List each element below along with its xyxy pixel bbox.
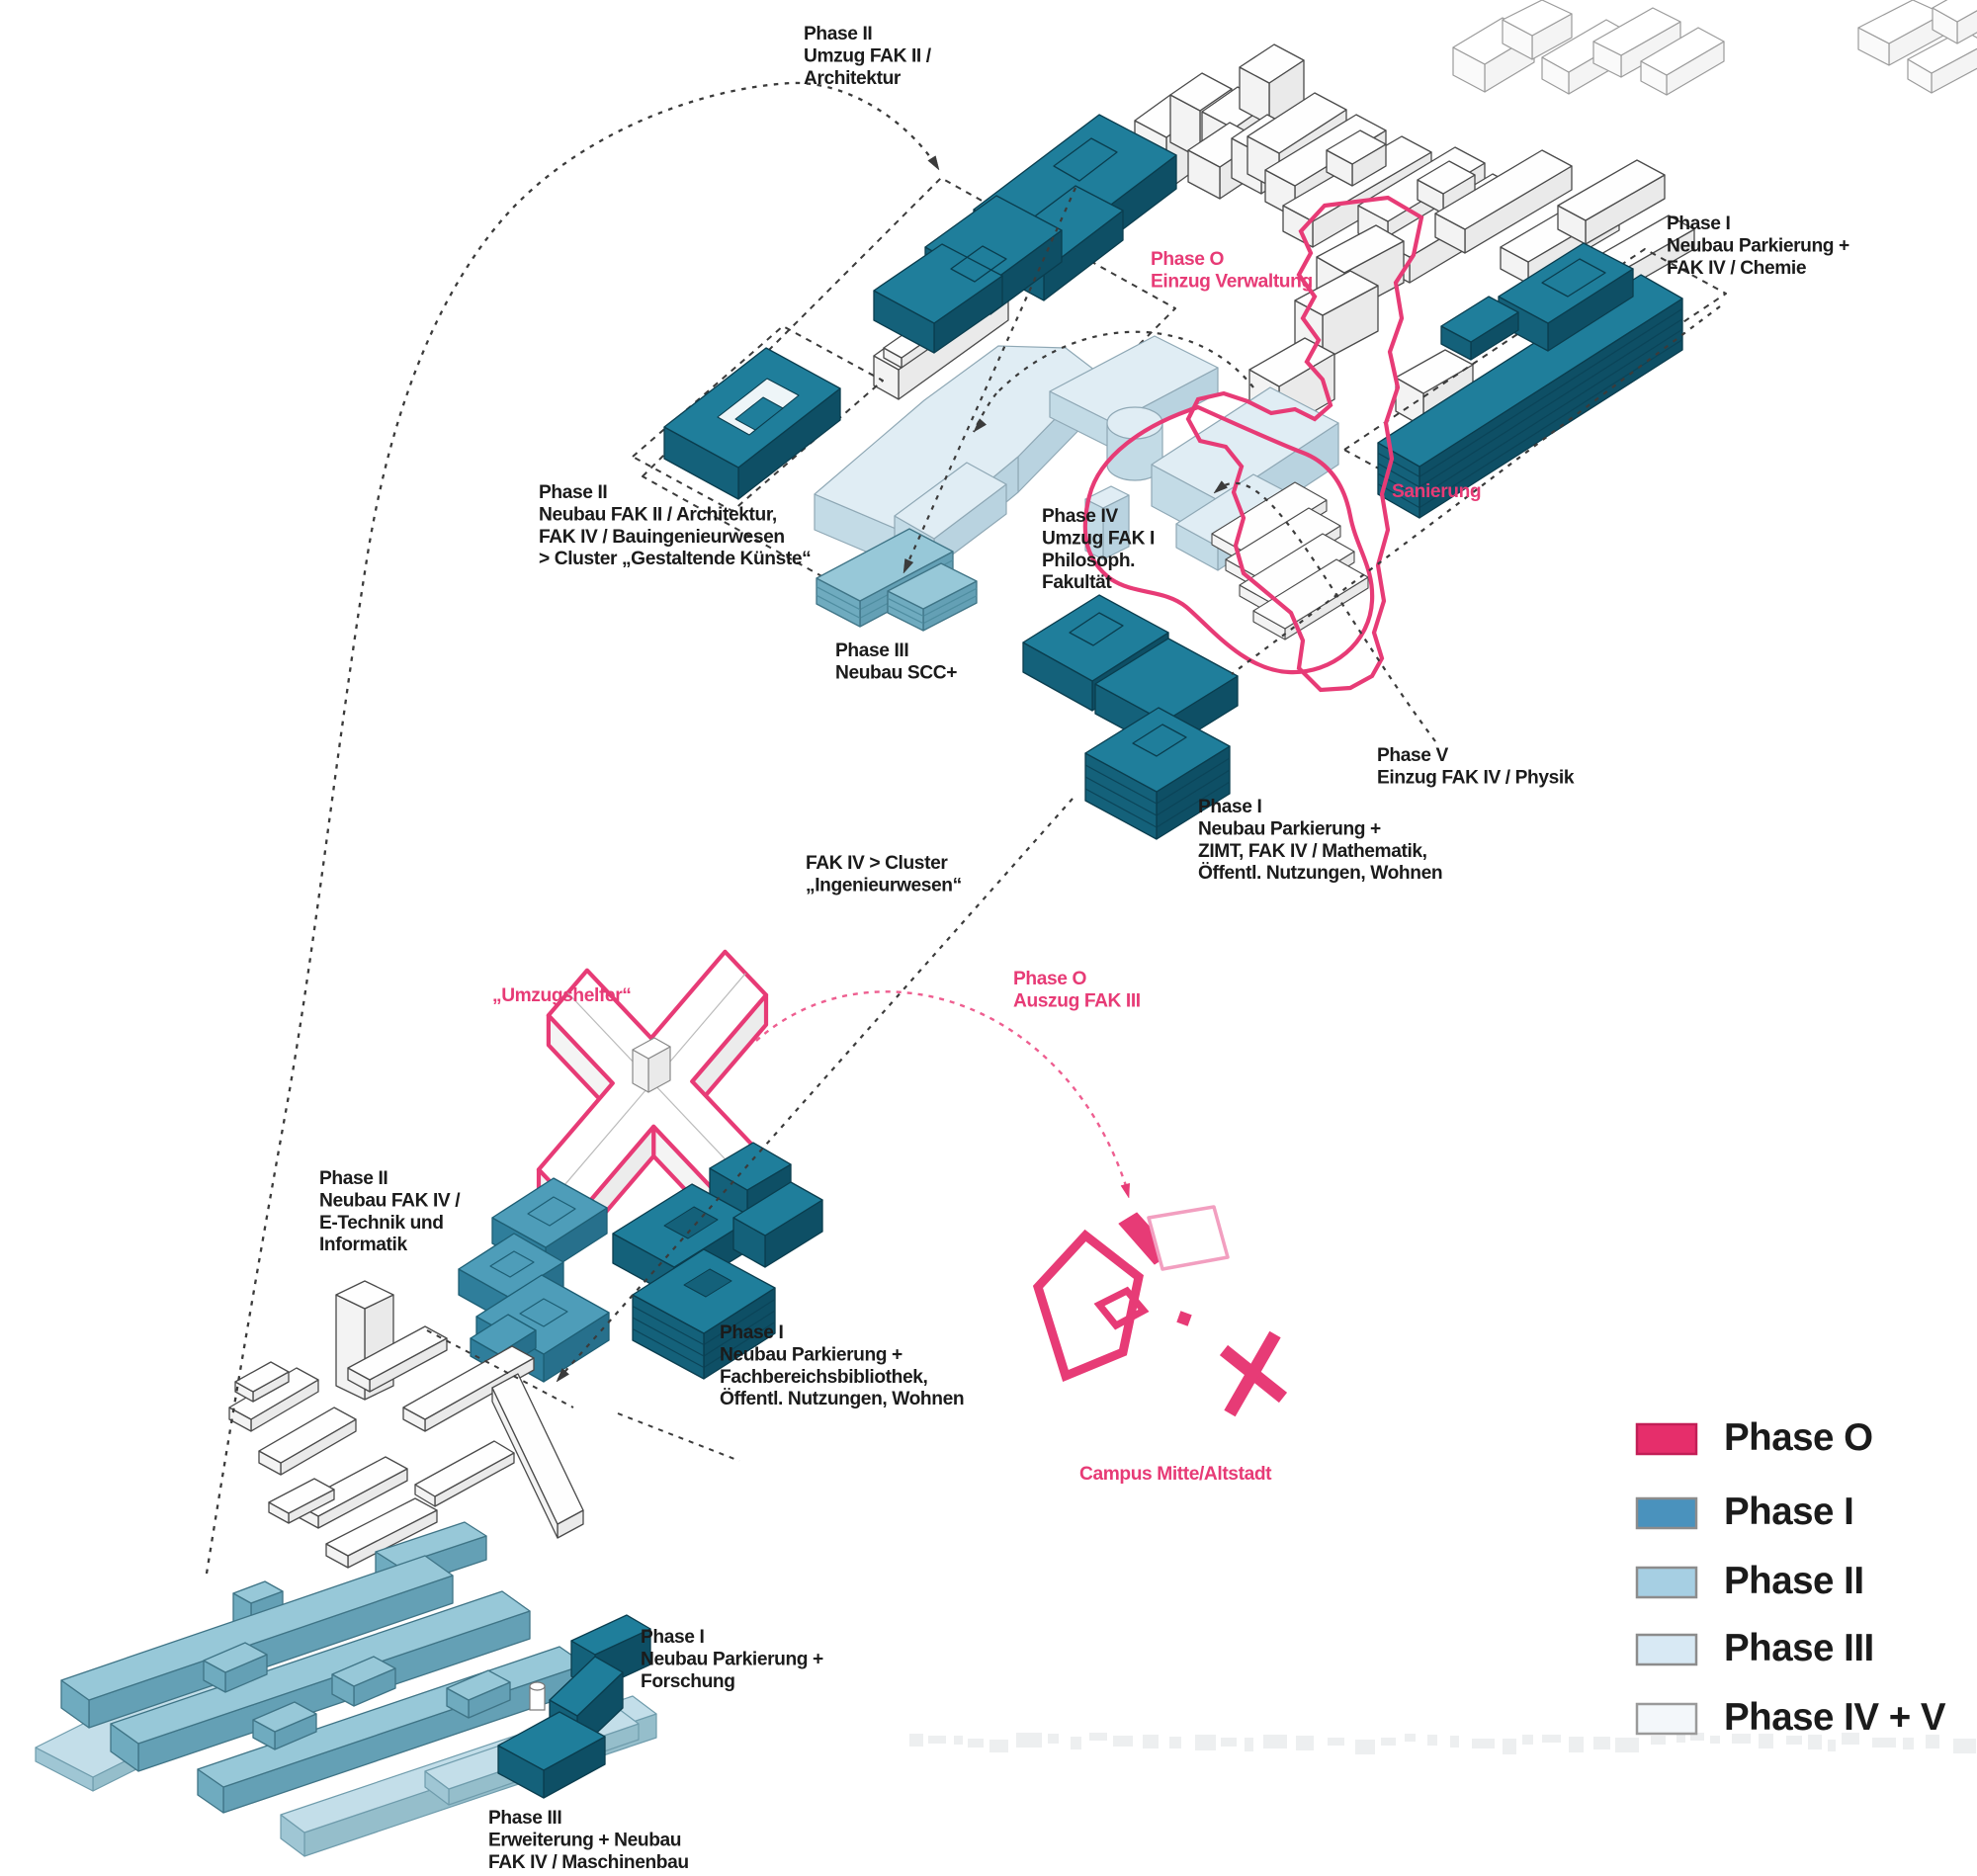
svg-text:Phase INeubau Parkierung +Fach: Phase INeubau Parkierung +Fachbereichsbi… [720, 1322, 964, 1409]
svg-text:Phase IIINeubau SCC+: Phase IIINeubau SCC+ [835, 640, 957, 683]
svg-text:Campus Mitte/Altstadt: Campus Mitte/Altstadt [1079, 1464, 1272, 1485]
svg-text:Phase IIUmzug FAK II /Architek: Phase IIUmzug FAK II /Architektur [804, 24, 932, 89]
svg-text:FAK IV > Cluster„Ingenieurwese: FAK IV > Cluster„Ingenieurwesen“ [806, 853, 962, 895]
svg-text:Phase IV + V: Phase IV + V [1724, 1696, 1946, 1739]
svg-text:Phase INeubau Parkierung +FAK: Phase INeubau Parkierung +FAK IV / Chemi… [1667, 213, 1849, 279]
svg-text:Phase IIIErweiterung + NeubauF: Phase IIIErweiterung + NeubauFAK IV / Ma… [488, 1808, 689, 1873]
svg-text:Phase OEinzug Verwaltung: Phase OEinzug Verwaltung [1151, 249, 1313, 292]
svg-text:Phase OAuszug FAK III: Phase OAuszug FAK III [1013, 969, 1141, 1011]
svg-text:Phase IINeubau FAK IV /E-Techn: Phase IINeubau FAK IV /E-Technik undInfo… [319, 1168, 461, 1255]
svg-text:Phase INeubau Parkierung +ZIMT: Phase INeubau Parkierung +ZIMT, FAK IV /… [1198, 797, 1442, 884]
svg-text:Phase O: Phase O [1724, 1416, 1873, 1459]
svg-text:Sanierung: Sanierung [1392, 481, 1481, 502]
svg-text:Phase IVUmzug FAK IPhilosoph.F: Phase IVUmzug FAK IPhilosoph.Fakultät [1042, 506, 1155, 593]
svg-text:Phase II: Phase II [1724, 1560, 1864, 1602]
svg-text:Phase VEinzug FAK IV / Physik: Phase VEinzug FAK IV / Physik [1377, 745, 1575, 788]
svg-text:Phase III: Phase III [1724, 1627, 1874, 1669]
svg-text:Phase INeubau Parkierung +Fors: Phase INeubau Parkierung +Forschung [641, 1627, 823, 1692]
svg-text:Phase I: Phase I [1724, 1491, 1853, 1533]
svg-text:„Umzugshelfer“: „Umzugshelfer“ [492, 985, 631, 1006]
